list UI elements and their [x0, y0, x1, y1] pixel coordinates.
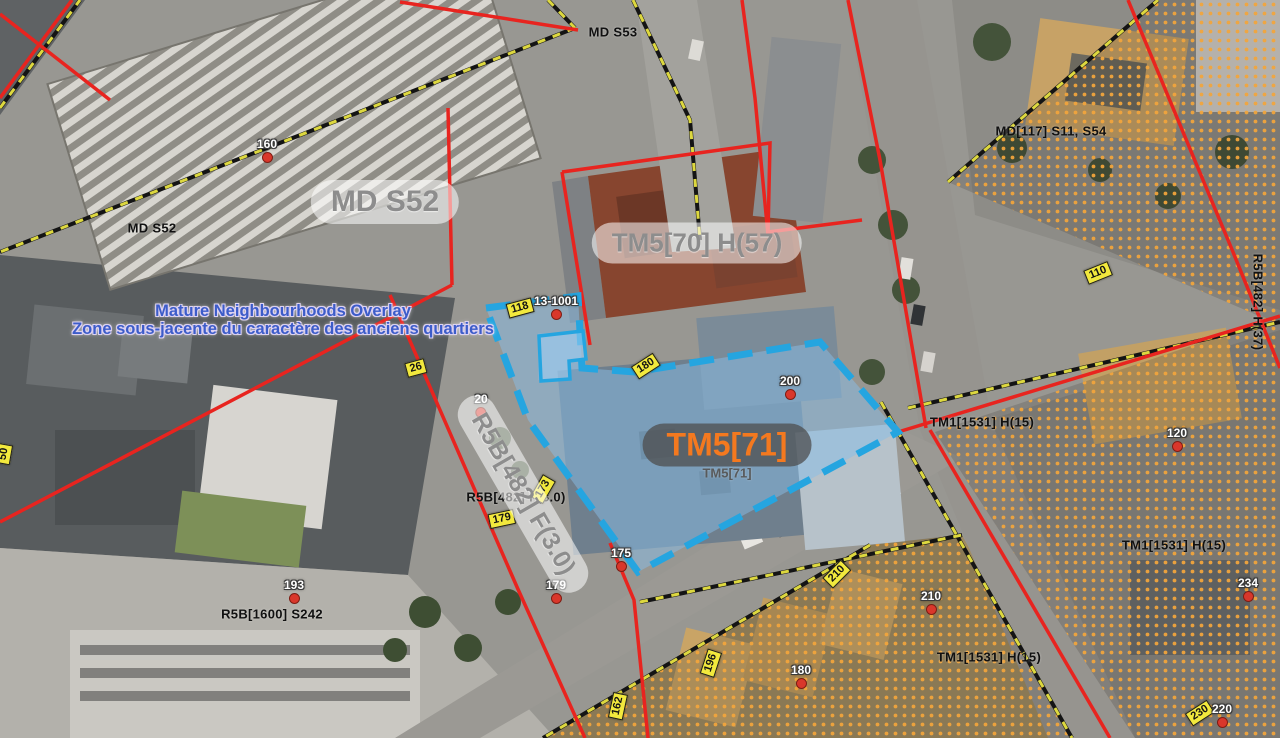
address-marker: 210 [921, 589, 941, 615]
address-point-icon [289, 593, 300, 604]
address-point-icon [551, 593, 562, 604]
address-marker: 200 [780, 374, 800, 400]
address-point-icon [1172, 441, 1183, 452]
address-marker: 160 [257, 137, 277, 163]
address-number: 234 [1238, 576, 1258, 590]
address-point-icon [616, 561, 627, 572]
address-number: 175 [611, 546, 631, 560]
address-number: 220 [1212, 702, 1232, 716]
address-marker: 220 [1212, 702, 1232, 728]
zone-pill: MD S52 [311, 180, 459, 224]
zone-label: TM1[1531] H(15) [937, 650, 1041, 665]
zone-label: MD[117] S11, S54 [995, 124, 1106, 139]
address-point-icon [796, 678, 807, 689]
zone-label: TM1[1531] H(15) [1122, 538, 1226, 553]
address-point-icon [1217, 717, 1228, 728]
address-marker: 193 [284, 578, 304, 604]
address-number: 180 [791, 663, 811, 677]
overlay-notice-fr: Zone sous-jacente du caractère des ancie… [72, 320, 494, 338]
overlay-notice: Mature Neighbourhoods Overlay Zone sous-… [72, 302, 494, 338]
address-number: 160 [257, 137, 277, 151]
address-number: 193 [284, 578, 304, 592]
address-point-icon [785, 389, 796, 400]
zone-label: R5B[482] H(37) [1251, 254, 1266, 351]
address-marker: 175 [611, 546, 631, 572]
zone-label: MD S53 [589, 25, 638, 40]
address-number: 200 [780, 374, 800, 388]
overlay-notice-en: Mature Neighbourhoods Overlay [72, 302, 494, 320]
zone-code-subtext: TM5[71] [702, 466, 751, 481]
address-marker: 13-1001 [534, 294, 578, 320]
zone-label: TM1[1531] H(15) [930, 415, 1034, 430]
address-number: 120 [1167, 426, 1187, 440]
zone-pill: TM5[70] H(57) [592, 223, 802, 264]
address-point-icon [550, 309, 561, 320]
highlighted-zone-label: TM5[71] TM5[71] [643, 424, 812, 481]
map-canvas[interactable]: MD S53MD S52R5B[482] F(3.0)R5B[1600] S24… [0, 0, 1280, 738]
address-marker: 234 [1238, 576, 1258, 602]
zone-label: MD S52 [128, 221, 177, 236]
address-number: 13-1001 [534, 294, 578, 308]
address-point-icon [262, 152, 273, 163]
address-marker: 180 [791, 663, 811, 689]
address-point-icon [1243, 591, 1254, 602]
address-marker: 120 [1167, 426, 1187, 452]
address-point-icon [926, 604, 937, 615]
zone-label: R5B[1600] S242 [221, 607, 323, 622]
address-number: 210 [921, 589, 941, 603]
zone-code-pill: TM5[71] [643, 424, 812, 467]
